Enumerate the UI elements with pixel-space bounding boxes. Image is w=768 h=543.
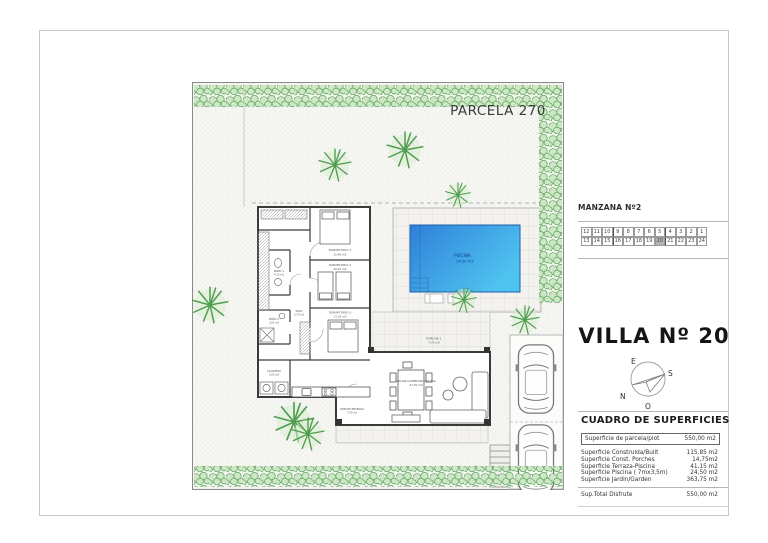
manzana-cell: 19: [644, 237, 655, 247]
compass-west-label: O: [645, 402, 651, 411]
surface-value: 24,50 m2: [690, 470, 718, 477]
rule-3: [578, 411, 728, 412]
surface-label: Superficie Const. Porches: [581, 457, 655, 464]
surface-label: Superficie de parcela/plot: [585, 436, 659, 443]
manzana-cell: 9: [613, 227, 624, 237]
site-plan: PISCINA 24,50 m2: [192, 82, 564, 490]
surface-row: Superficie Piscina ( 7mx3,5m) 24,50 m2: [581, 470, 718, 477]
manzana-cell: 16: [613, 237, 624, 247]
label-porche-1: PORCHE 17,75 m2: [426, 337, 441, 345]
manzana-cell: 17: [623, 237, 634, 247]
surface-value: 363,75 m2: [687, 477, 718, 484]
manzana-cell: 6: [644, 227, 655, 237]
manzana-cell: 12: [581, 227, 592, 237]
surface-value: 550,00 m2: [687, 492, 718, 499]
surface-rows: Superficie Construida/Built 115,85 m2 Su…: [581, 450, 718, 484]
manzana-grid: 12 11 10 9 8 7 6 5 4 3 2 1 13 14 15 16 1…: [581, 227, 707, 246]
cuadro-title: CUADRO DE SUPERFICIES: [581, 415, 730, 426]
surface-value: 550,00 m2: [685, 436, 716, 443]
surface-row: Superficie Const. Porches 14,75m2: [581, 457, 718, 464]
pool: PISCINA 24,50 m2: [410, 225, 520, 292]
manzana-cell: 2: [686, 227, 697, 237]
manzana-cell: 21: [665, 237, 676, 247]
manzana-cell: 7: [634, 227, 645, 237]
compass-south-label: S: [668, 369, 673, 378]
compass-rose: E S N O: [612, 350, 686, 412]
rule-4: [578, 487, 728, 488]
manzana-cell: 14: [592, 237, 603, 247]
plan-sheet-page: { "page": { "parcela_label": "PARCELA 27…: [0, 0, 768, 543]
manzana-cell: 10: [602, 227, 613, 237]
surface-label: Superficie Terraza-Piscina: [581, 464, 655, 471]
surface-row: Superficie Jardin/Garden 363,75 m2: [581, 477, 718, 484]
manzana-cell: 11: [592, 227, 603, 237]
manzana-cell: 24: [697, 237, 708, 247]
compass-east-label: E: [631, 357, 636, 366]
surface-label: Superficie Jardin/Garden: [581, 477, 652, 484]
surface-row: Superficie Terraza-Piscina 41,15 m2: [581, 464, 718, 471]
manzana-cell: 13: [581, 237, 592, 247]
bed-dormitorio-3: [328, 320, 358, 352]
label-lavadero: LAVADERO2,60 m2: [267, 369, 281, 377]
bed-dormitorio-1: [320, 210, 350, 244]
rule-2: [578, 258, 728, 259]
parcela-label: PARCELA 270: [450, 103, 546, 119]
surface-value: 14,75m2: [692, 457, 718, 464]
manzana-cell: 18: [634, 237, 645, 247]
surface-value: 41,15 m2: [690, 464, 718, 471]
surface-row: Superficie Construida/Built 115,85 m2: [581, 450, 718, 457]
rule-1: [578, 221, 728, 222]
surface-row-plot: Superficie de parcela/plot 550,00 m2: [581, 433, 720, 445]
surface-row-total: Sup.Total Disfrute 550,00 m2: [581, 492, 718, 499]
surface-value: 115,85 m2: [687, 450, 718, 457]
manzana-cell: 3: [676, 227, 687, 237]
manzana-title: MANZANA Nº2: [578, 203, 641, 212]
surface-label: Superficie Construida/Built: [581, 450, 658, 457]
manzana-cell-highlighted: 20: [655, 237, 666, 247]
surface-label: Sup.Total Disfrute: [581, 492, 632, 499]
manzana-cell: 23: [686, 237, 697, 247]
manzana-cell: 15: [602, 237, 613, 247]
label-bano-2: BAÑO 23,55 m2: [269, 316, 279, 325]
compass-north-label: N: [620, 392, 626, 401]
kitchen-counter: [292, 387, 370, 397]
manzana-cell: 22: [676, 237, 687, 247]
surface-label: Superficie Piscina ( 7mx3,5m): [581, 470, 668, 477]
car-1: [516, 345, 557, 413]
villa-title: VILLA Nº 20: [578, 324, 730, 348]
label-bano-1: BAÑO 14,10 m2: [274, 268, 284, 277]
manzana-cell: 8: [623, 227, 634, 237]
manzana-cell: 1: [697, 227, 708, 237]
rule-5: [578, 506, 728, 507]
manzana-cell: 5: [655, 227, 666, 237]
manzana-cell: 4: [665, 227, 676, 237]
